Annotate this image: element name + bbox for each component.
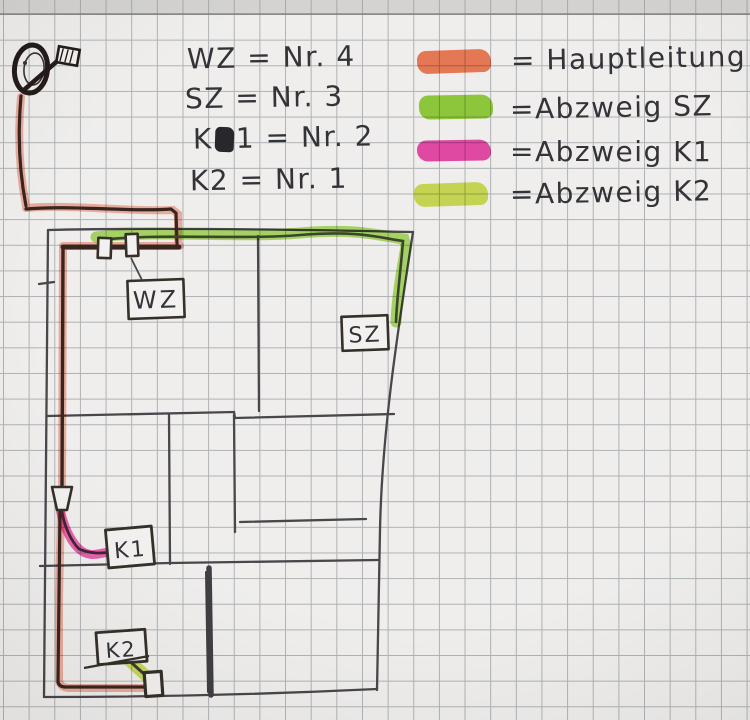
legend-label-sz: =Abzweig SZ	[510, 89, 714, 126]
key-line-wz: WZ = Nr. 4	[187, 40, 356, 76]
key-line-sz: SZ = Nr. 3	[185, 80, 344, 116]
legend-swatch-sz	[419, 94, 493, 119]
splitter-box	[52, 487, 72, 510]
dish-dot	[23, 61, 27, 65]
ink-scribble-blob	[214, 127, 234, 153]
wall-inner-horizontal-mid	[47, 412, 394, 418]
wall-outlet-box-2	[126, 234, 139, 256]
legend-label-hauptleitung: = Hauptleitung	[511, 40, 747, 77]
k1-room-label: K1	[113, 537, 147, 565]
k1-branch-line	[62, 512, 110, 553]
wall-tick-left	[39, 282, 54, 284]
key-line-k1-post: 1 = Nr. 2	[236, 119, 375, 154]
cable-left-run	[62, 249, 63, 487]
satellite-dish-icon	[12, 43, 80, 94]
legend-swatch-k2	[414, 182, 489, 208]
legend-swatch-k1	[417, 139, 491, 161]
legend-swatch-hauptleitung	[417, 49, 492, 75]
graph-paper-page: WZ SZ K1 K2	[0, 0, 750, 720]
dish-feedhorn	[56, 46, 79, 65]
room-label-boxes: WZ SZ K1 K2	[84, 258, 389, 668]
wall-inner-horizontal-lower	[40, 560, 378, 566]
wall-inner-vertical-sz	[258, 236, 259, 411]
key-line-k1-pre: K	[193, 122, 213, 155]
key-line-k1: K1 = Nr. 2	[193, 119, 375, 155]
sz-room-label: SZ	[348, 322, 382, 348]
door-mark	[206, 568, 211, 695]
main-line-highlight	[19, 97, 180, 688]
main-cable-line	[19, 96, 179, 687]
wall-inner-vertical-small	[234, 415, 235, 532]
wall-outlet-box-1	[98, 238, 112, 258]
wz-room-label: WZ	[132, 285, 179, 315]
legend-label-k2: =Abzweig K2	[510, 174, 713, 211]
apartment-walls	[39, 229, 413, 697]
key-line-k2: K2 = Nr. 1	[190, 162, 349, 198]
bottom-junction-box	[144, 671, 163, 696]
legend-label-k1: =Abzweig K1	[510, 135, 712, 168]
wall-inner-vertical-k1	[169, 415, 170, 564]
wz-pointer-line	[131, 258, 142, 280]
wall-outer-left	[44, 230, 48, 697]
wall-inner-horizontal-small	[240, 519, 366, 522]
